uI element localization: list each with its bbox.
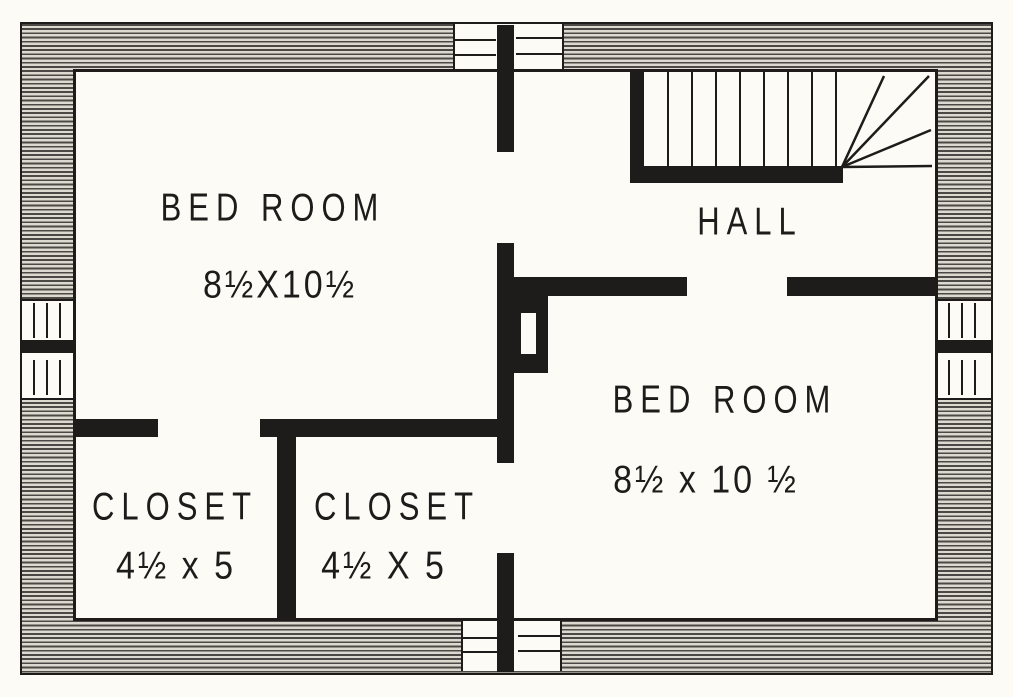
room-dims-bedroom-left: 8½X10½ xyxy=(130,265,430,304)
stair-winder-lines xyxy=(0,0,1013,697)
floor-plan: BED ROOM 8½X10½ HALL BED ROOM 8½ x 10 ½ … xyxy=(0,0,1013,697)
room-label-hall: HALL xyxy=(600,201,900,244)
winder-tread-line xyxy=(842,76,929,167)
room-label-closet-right: CLOSET xyxy=(247,486,547,529)
room-dims-bedroom-right: 8½ x 10 ½ xyxy=(556,460,856,499)
room-label-bedroom-left: BED ROOM xyxy=(123,187,423,230)
room-dims-closet-right: 4½ X 5 xyxy=(234,546,534,585)
room-label-bedroom-right: BED ROOM xyxy=(575,379,875,422)
winder-tread-line xyxy=(842,166,932,167)
